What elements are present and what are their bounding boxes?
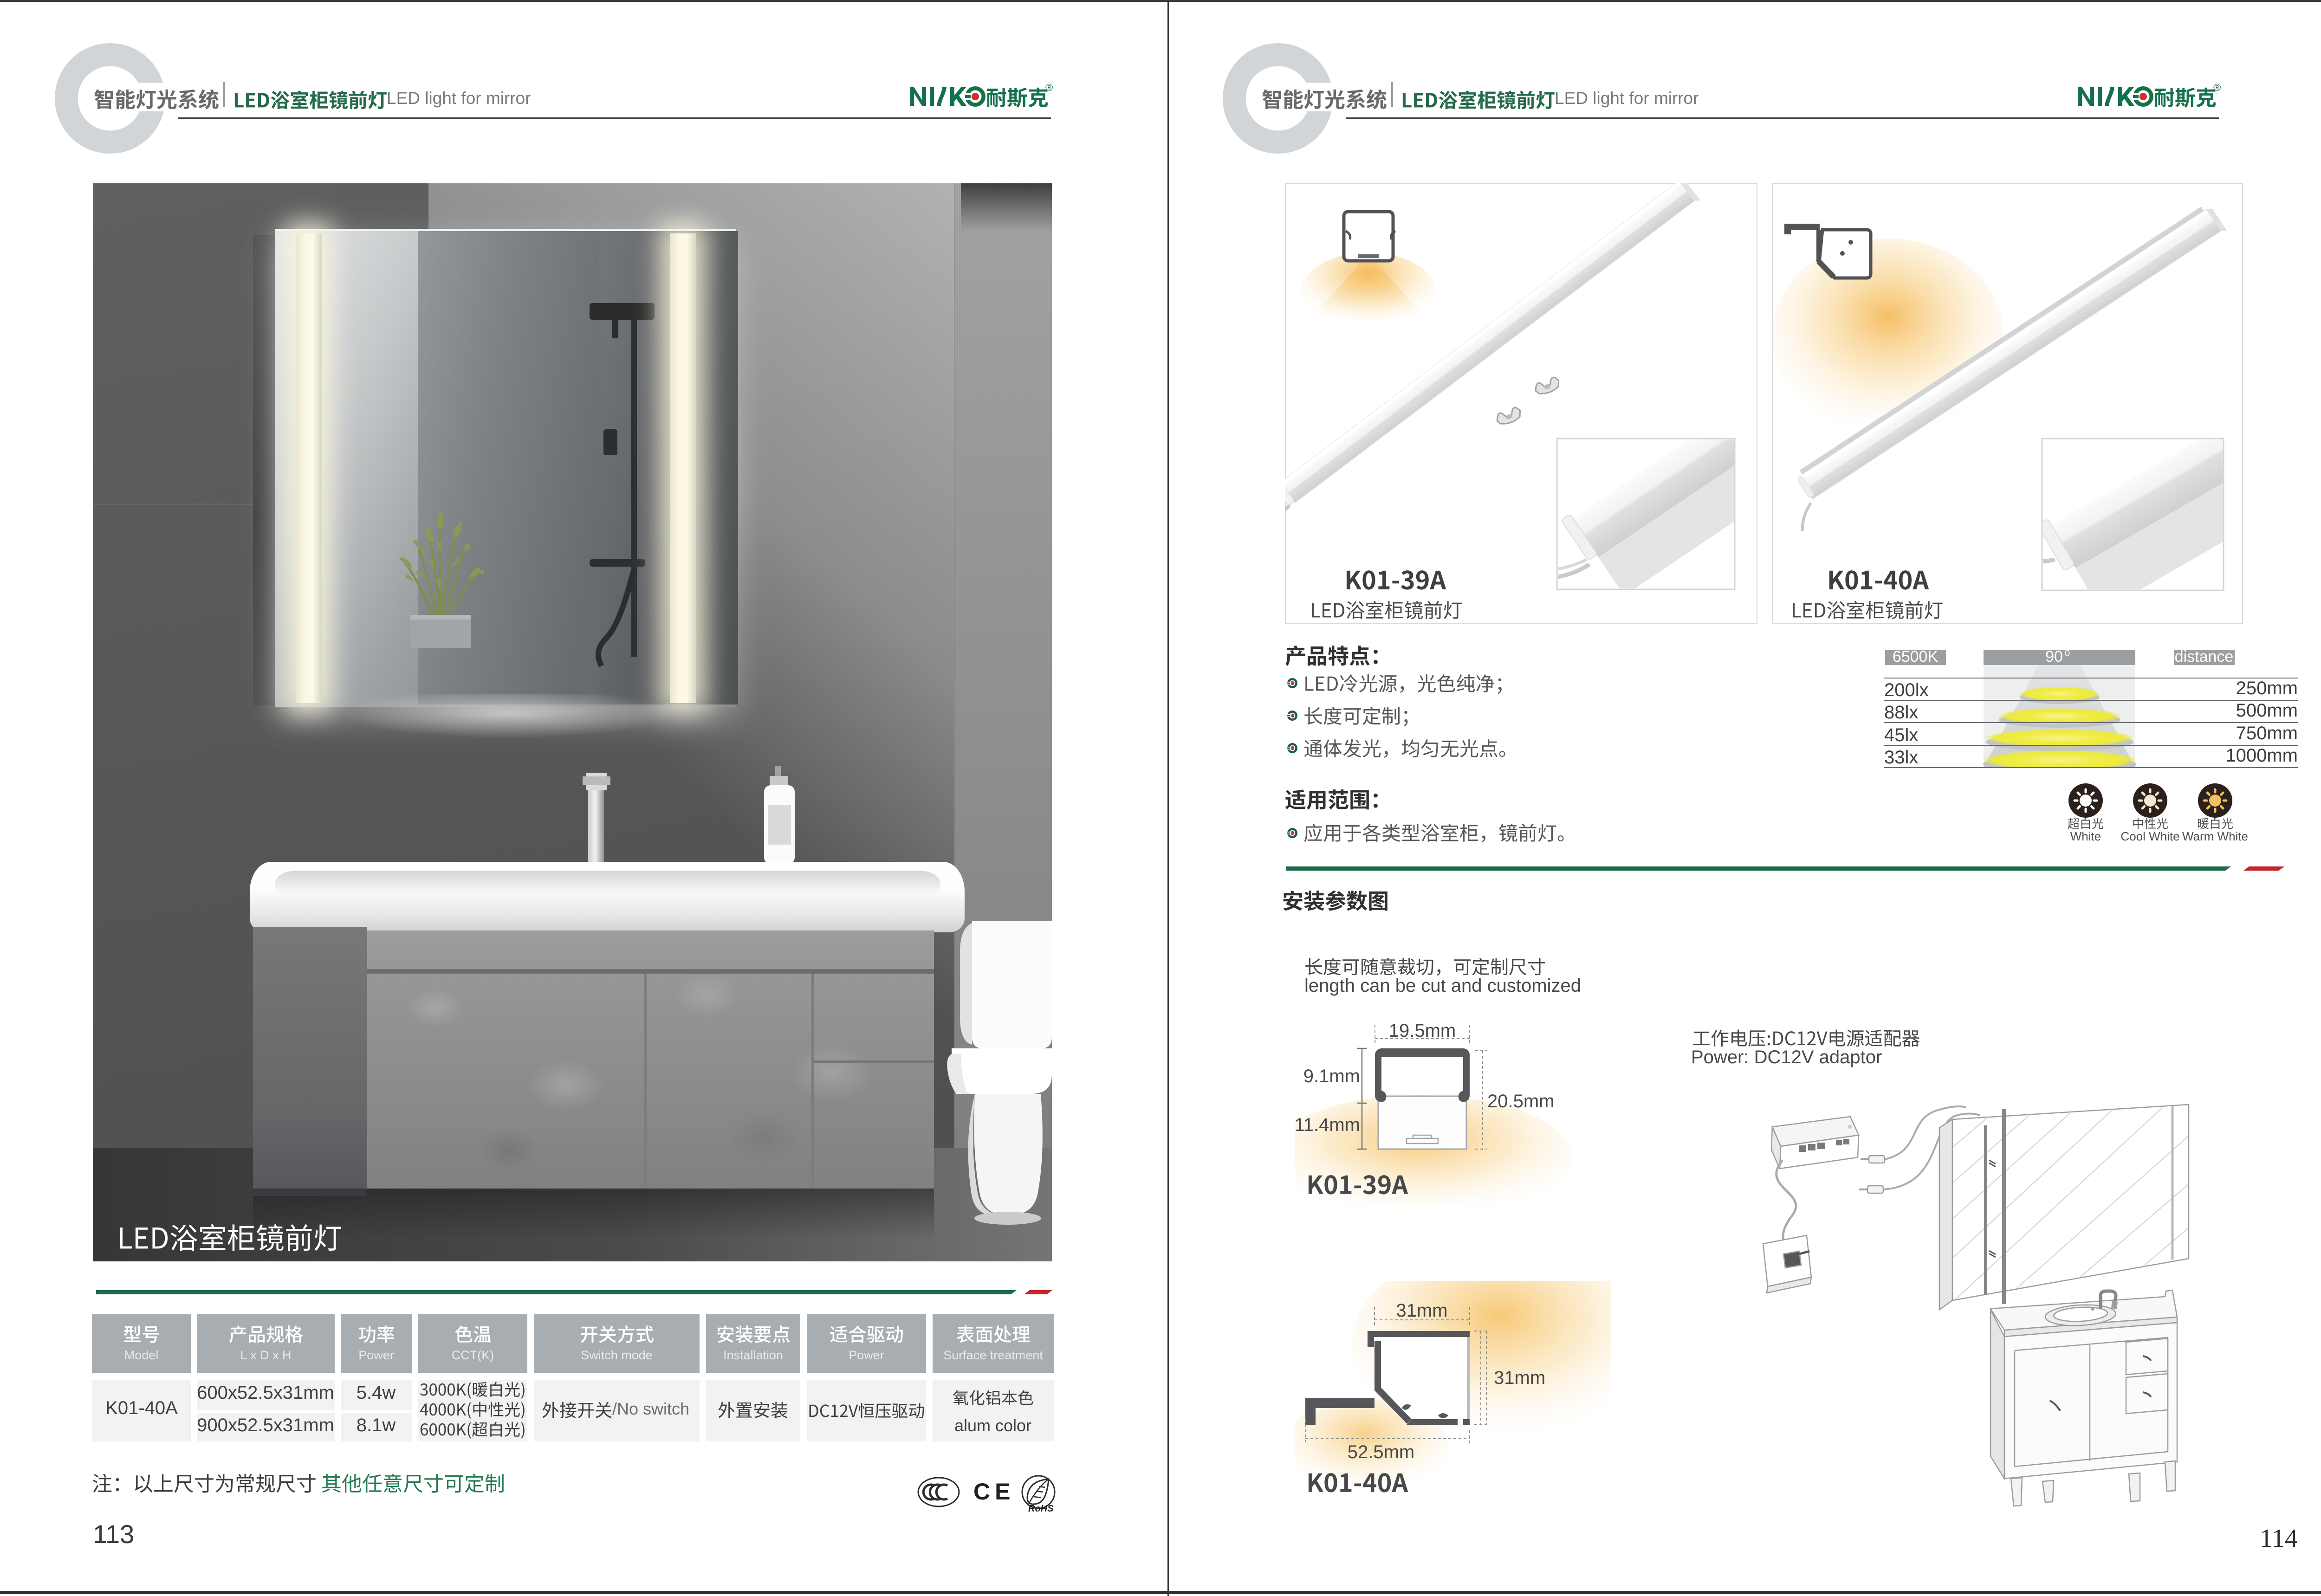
svg-text:distance: distance <box>2175 648 2234 666</box>
svg-text:88lx: 88lx <box>1884 702 1918 723</box>
svg-text:500mm: 500mm <box>2236 700 2298 721</box>
svg-text:RoHS: RoHS <box>1028 1504 1054 1514</box>
svg-text:C E: C E <box>973 1479 1010 1505</box>
svg-text:0: 0 <box>2065 648 2070 659</box>
svg-text:33lx: 33lx <box>1884 747 1918 768</box>
svg-text:250mm: 250mm <box>2236 678 2298 698</box>
svg-text:200lx: 200lx <box>1884 680 1929 700</box>
svg-text:6500K: 6500K <box>1893 648 1938 666</box>
svg-text:1000mm: 1000mm <box>2225 745 2298 766</box>
svg-text:750mm: 750mm <box>2236 723 2298 743</box>
svg-text:45lx: 45lx <box>1884 725 1918 745</box>
svg-text:90: 90 <box>2045 648 2063 666</box>
